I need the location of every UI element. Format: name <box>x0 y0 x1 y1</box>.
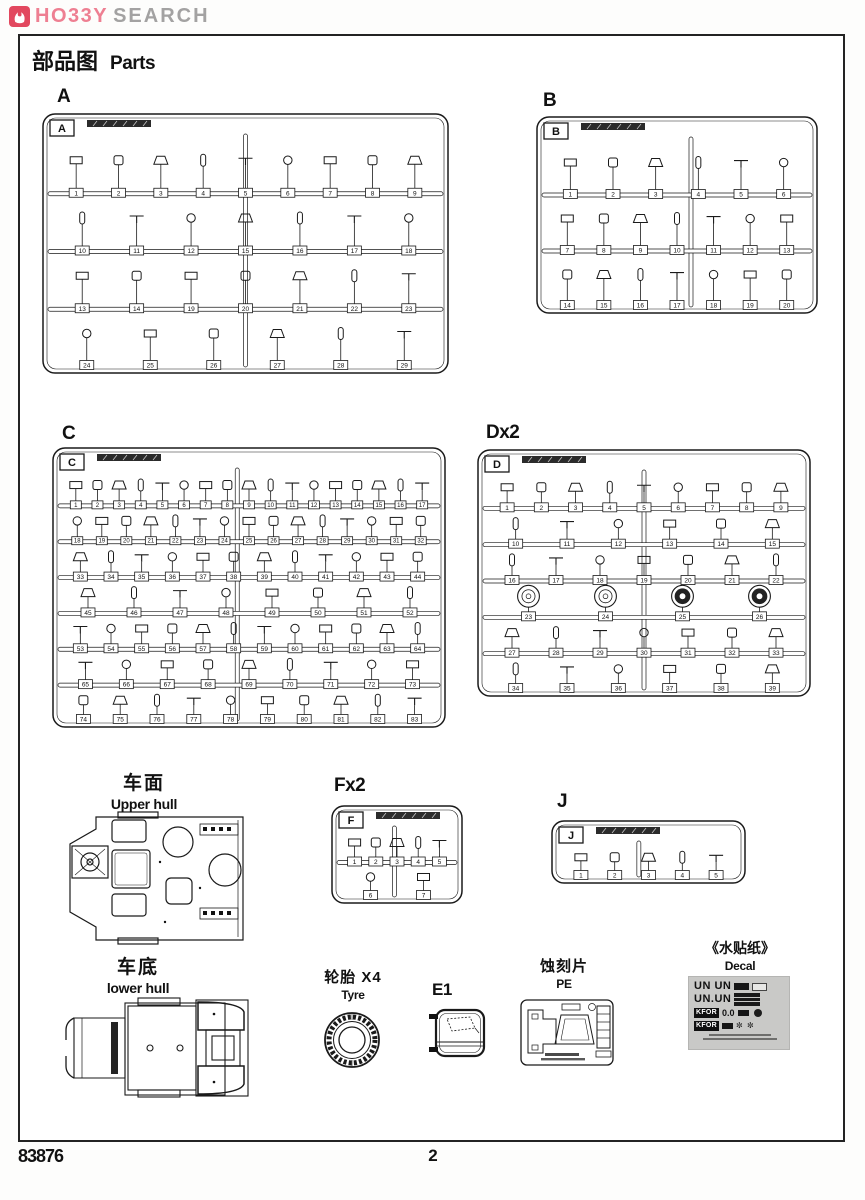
svg-text:21: 21 <box>296 306 304 313</box>
svg-text:12: 12 <box>615 541 623 548</box>
svg-text:10: 10 <box>267 503 274 509</box>
svg-text:19: 19 <box>747 303 755 310</box>
svg-text:77: 77 <box>190 717 198 724</box>
svg-text:1: 1 <box>353 859 357 866</box>
svg-text:7: 7 <box>711 505 715 512</box>
svg-text:11: 11 <box>564 541 571 548</box>
svg-text:22: 22 <box>351 306 359 313</box>
svg-text:5: 5 <box>244 190 248 197</box>
svg-text:F: F <box>348 815 355 827</box>
svg-text:8: 8 <box>371 190 375 197</box>
svg-text:38: 38 <box>230 574 238 581</box>
sprue-J: J12345 <box>552 821 745 883</box>
svg-text:18: 18 <box>405 248 413 255</box>
svg-text:30: 30 <box>368 539 375 545</box>
svg-text:28: 28 <box>319 539 326 545</box>
decal-chip <box>738 1010 749 1016</box>
svg-text:52: 52 <box>406 610 414 617</box>
sprue-F-mold-stamp <box>376 812 440 819</box>
svg-text:29: 29 <box>596 650 604 657</box>
svg-text:34: 34 <box>107 574 115 581</box>
svg-text:6: 6 <box>286 190 290 197</box>
svg-text:43: 43 <box>383 574 391 581</box>
upper-hull-title-cjk: 车面 <box>98 768 190 795</box>
sprue-F: F1234567 <box>332 806 462 903</box>
svg-text:20: 20 <box>242 306 250 313</box>
svg-text:19: 19 <box>640 578 648 585</box>
svg-text:74: 74 <box>80 717 88 724</box>
svg-text:16: 16 <box>508 578 516 585</box>
decal-un-marking-2: UN.UN <box>694 994 731 1005</box>
svg-text:78: 78 <box>227 717 235 724</box>
svg-text:39: 39 <box>769 686 777 693</box>
decal-plate-chip <box>734 983 749 990</box>
sprue-B: B1234567891011121314151617181920 <box>537 117 817 313</box>
lower-hull-title-cjk: 车底 <box>92 952 184 979</box>
svg-text:13: 13 <box>783 248 791 255</box>
svg-text:2: 2 <box>117 190 121 197</box>
svg-text:76: 76 <box>153 717 161 724</box>
svg-text:1: 1 <box>74 190 78 197</box>
pe-title-cjk: 蚀刻片 <box>530 955 598 976</box>
svg-text:4: 4 <box>697 192 701 199</box>
svg-text:3: 3 <box>647 873 651 880</box>
svg-text:D: D <box>493 459 501 471</box>
svg-text:2: 2 <box>540 505 544 512</box>
e1-label: E1 <box>432 980 452 1000</box>
svg-text:26: 26 <box>210 363 218 370</box>
svg-text:32: 32 <box>417 539 424 545</box>
svg-text:62: 62 <box>353 646 361 653</box>
svg-text:3: 3 <box>654 192 658 199</box>
svg-text:10: 10 <box>79 248 87 255</box>
svg-text:34: 34 <box>512 686 520 693</box>
svg-text:23: 23 <box>525 614 533 621</box>
svg-text:69: 69 <box>245 682 253 689</box>
svg-text:48: 48 <box>222 610 230 617</box>
decal-row-4: KFOR ✼ ✼ <box>694 1019 785 1032</box>
svg-text:60: 60 <box>291 646 299 653</box>
svg-text:13: 13 <box>666 541 674 548</box>
svg-text:18: 18 <box>74 539 81 545</box>
sprue-C-label: C <box>60 454 84 470</box>
svg-text:31: 31 <box>393 539 400 545</box>
svg-text:29: 29 <box>401 363 409 370</box>
svg-text:5: 5 <box>714 873 718 880</box>
sprue-F-heading: Fx2 <box>334 775 365 797</box>
svg-text:27: 27 <box>274 363 282 370</box>
svg-text:5: 5 <box>739 192 743 199</box>
svg-text:80: 80 <box>301 717 309 724</box>
upper-hull-title-en: Upper hull <box>98 796 190 812</box>
sprue-A-heading: A <box>57 86 70 108</box>
svg-text:75: 75 <box>117 717 125 724</box>
svg-text:15: 15 <box>600 303 608 310</box>
decal-emblems: ✼ ✼ <box>736 1021 755 1030</box>
svg-text:16: 16 <box>397 503 404 509</box>
svg-text:38: 38 <box>717 686 725 693</box>
svg-text:24: 24 <box>602 614 610 621</box>
svg-text:6: 6 <box>676 505 680 512</box>
svg-text:53: 53 <box>77 646 85 653</box>
sprue-D: D123456789101112131415161718192021222324… <box>478 450 810 696</box>
upper-hull-drawing <box>70 812 243 944</box>
svg-text:23: 23 <box>405 306 413 313</box>
svg-text:3: 3 <box>395 859 399 866</box>
sprue-A-label: A <box>50 120 74 136</box>
decal-roundel <box>754 1009 762 1017</box>
svg-text:35: 35 <box>563 686 571 693</box>
svg-text:50: 50 <box>314 610 322 617</box>
svg-text:20: 20 <box>783 303 791 310</box>
svg-text:26: 26 <box>270 539 277 545</box>
svg-text:33: 33 <box>772 650 780 657</box>
svg-text:16: 16 <box>637 303 645 310</box>
svg-text:14: 14 <box>564 303 572 310</box>
svg-text:44: 44 <box>414 574 422 581</box>
svg-text:1: 1 <box>579 873 583 880</box>
svg-text:51: 51 <box>360 610 368 617</box>
decal-kfor-badge: KFOR <box>694 1008 719 1018</box>
decal-kfor-badge-2: KFOR <box>694 1021 719 1031</box>
svg-text:15: 15 <box>376 503 383 509</box>
svg-text:15: 15 <box>242 248 250 255</box>
svg-text:17: 17 <box>552 578 560 585</box>
svg-text:3: 3 <box>574 505 578 512</box>
sprue-C-heading: C <box>62 423 75 445</box>
svg-text:28: 28 <box>337 363 345 370</box>
svg-text:5: 5 <box>642 505 646 512</box>
svg-text:56: 56 <box>169 646 177 653</box>
decal-row-1: UN UN <box>694 980 785 993</box>
svg-text:A: A <box>58 123 66 135</box>
svg-text:11: 11 <box>710 248 717 255</box>
decal-title-en: Decal <box>684 959 796 973</box>
sprue-J-mold-stamp <box>596 827 660 834</box>
tyre-title-cjk: 轮胎 X4 <box>316 966 390 987</box>
svg-text:12: 12 <box>747 248 755 255</box>
svg-text:C: C <box>68 457 76 469</box>
svg-text:36: 36 <box>615 686 623 693</box>
svg-text:25: 25 <box>246 539 253 545</box>
instruction-page: HO33Y SEARCH 部品图Parts <box>0 0 865 1200</box>
svg-text:2: 2 <box>374 859 378 866</box>
svg-text:30: 30 <box>640 650 648 657</box>
svg-text:57: 57 <box>199 646 207 653</box>
svg-text:49: 49 <box>268 610 276 617</box>
svg-text:12: 12 <box>187 248 195 255</box>
svg-text:8: 8 <box>602 248 606 255</box>
svg-text:83: 83 <box>411 717 419 724</box>
decal-fine-print <box>694 1034 785 1040</box>
svg-text:37: 37 <box>199 574 207 581</box>
svg-text:4: 4 <box>416 859 420 866</box>
svg-text:13: 13 <box>332 503 339 509</box>
svg-text:37: 37 <box>666 686 674 693</box>
svg-text:7: 7 <box>565 248 569 255</box>
sprue-F-label: F <box>339 812 363 828</box>
sprue-C-mold-stamp <box>97 454 161 461</box>
svg-text:19: 19 <box>187 306 195 313</box>
decal-un-marking: UN UN <box>694 981 731 992</box>
svg-text:15: 15 <box>769 541 777 548</box>
decal-row-2: UN.UN <box>694 993 785 1006</box>
svg-text:81: 81 <box>337 717 345 724</box>
sprue-D-heading: Dx2 <box>486 422 519 444</box>
svg-text:27: 27 <box>508 650 516 657</box>
sprue-B-heading: B <box>543 90 556 112</box>
svg-text:4: 4 <box>608 505 612 512</box>
svg-text:11: 11 <box>133 248 140 255</box>
svg-text:27: 27 <box>295 539 302 545</box>
svg-text:35: 35 <box>138 574 146 581</box>
svg-text:41: 41 <box>322 574 330 581</box>
svg-text:28: 28 <box>552 650 560 657</box>
sprue-B-label: B <box>544 123 568 139</box>
svg-text:67: 67 <box>164 682 172 689</box>
svg-text:12: 12 <box>311 503 318 509</box>
svg-text:21: 21 <box>728 578 736 585</box>
svg-text:B: B <box>552 126 560 138</box>
decal-number: 0.0 <box>722 1008 735 1018</box>
svg-text:4: 4 <box>680 873 684 880</box>
svg-text:55: 55 <box>138 646 146 653</box>
svg-text:24: 24 <box>221 539 228 545</box>
svg-text:24: 24 <box>83 363 91 370</box>
svg-text:14: 14 <box>717 541 725 548</box>
svg-text:45: 45 <box>84 610 92 617</box>
kit-number: 83876 <box>18 1146 63 1167</box>
svg-text:70: 70 <box>286 682 294 689</box>
decal-chip-2 <box>722 1023 733 1029</box>
svg-text:21: 21 <box>148 539 155 545</box>
svg-text:46: 46 <box>130 610 138 617</box>
pe-title-en: PE <box>530 977 598 991</box>
svg-text:25: 25 <box>147 363 155 370</box>
svg-text:9: 9 <box>639 248 643 255</box>
svg-text:6: 6 <box>369 893 373 900</box>
sprue-A: A123456789101112151617181314192021222324… <box>43 114 448 373</box>
page-number: 2 <box>403 1146 463 1166</box>
svg-text:9: 9 <box>413 190 417 197</box>
svg-text:16: 16 <box>296 248 304 255</box>
svg-text:2: 2 <box>613 873 617 880</box>
svg-text:63: 63 <box>383 646 391 653</box>
svg-text:22: 22 <box>772 578 780 585</box>
svg-text:J: J <box>568 830 574 842</box>
svg-text:3: 3 <box>159 190 163 197</box>
sprue-J-label: J <box>559 827 583 843</box>
svg-text:14: 14 <box>354 503 361 509</box>
sprue-J-heading: J <box>557 791 567 813</box>
sprue-C: C123456789101112131415161718192021222324… <box>53 448 445 727</box>
svg-text:18: 18 <box>596 578 604 585</box>
tyre-drawing <box>325 1013 379 1067</box>
svg-text:61: 61 <box>322 646 330 653</box>
upper-hull-title: 车面 Upper hull <box>98 768 190 812</box>
svg-text:58: 58 <box>230 646 238 653</box>
svg-text:72: 72 <box>368 682 376 689</box>
svg-text:79: 79 <box>264 717 272 724</box>
lower-hull-drawing <box>66 998 248 1097</box>
svg-text:71: 71 <box>327 682 335 689</box>
svg-text:17: 17 <box>673 303 681 310</box>
sprue-D-mold-stamp <box>522 456 586 463</box>
svg-text:7: 7 <box>328 190 332 197</box>
svg-text:39: 39 <box>261 574 269 581</box>
svg-text:40: 40 <box>291 574 299 581</box>
svg-text:68: 68 <box>204 682 212 689</box>
svg-text:18: 18 <box>710 303 718 310</box>
svg-text:42: 42 <box>353 574 361 581</box>
svg-text:29: 29 <box>344 539 351 545</box>
lower-hull-title-en: lower hull <box>92 980 184 996</box>
e1-part-drawing <box>429 1010 484 1056</box>
decal-title: 《水贴纸》 Decal <box>684 938 796 973</box>
svg-text:73: 73 <box>409 682 417 689</box>
svg-text:54: 54 <box>107 646 115 653</box>
tyre-title: 轮胎 X4 Tyre <box>316 966 390 1002</box>
svg-text:36: 36 <box>169 574 177 581</box>
svg-text:5: 5 <box>438 859 442 866</box>
svg-text:7: 7 <box>422 893 426 900</box>
svg-text:19: 19 <box>98 539 105 545</box>
decal-license-plates <box>734 993 760 1006</box>
svg-text:66: 66 <box>123 682 131 689</box>
svg-text:2: 2 <box>611 192 615 199</box>
svg-text:10: 10 <box>512 541 520 548</box>
lower-hull-title: 车底 lower hull <box>92 952 184 996</box>
tyre-title-en: Tyre <box>316 988 390 1002</box>
svg-text:82: 82 <box>374 717 382 724</box>
pe-fret-drawing <box>521 1000 613 1065</box>
svg-text:1: 1 <box>505 505 509 512</box>
svg-text:14: 14 <box>133 306 141 313</box>
sprue-B-mold-stamp <box>581 123 645 130</box>
svg-text:10: 10 <box>673 248 681 255</box>
svg-text:31: 31 <box>684 650 692 657</box>
svg-text:25: 25 <box>679 614 687 621</box>
svg-text:11: 11 <box>289 503 296 509</box>
svg-text:33: 33 <box>77 574 85 581</box>
decal-row-3: KFOR 0.0 <box>694 1006 785 1019</box>
svg-text:22: 22 <box>172 539 179 545</box>
svg-text:9: 9 <box>779 505 783 512</box>
decal-plate-chip-light <box>752 983 767 991</box>
sprue-D-label: D <box>485 456 509 472</box>
svg-text:47: 47 <box>176 610 184 617</box>
decal-title-cjk: 《水贴纸》 <box>684 938 796 958</box>
svg-text:13: 13 <box>79 306 87 313</box>
svg-text:65: 65 <box>82 682 90 689</box>
svg-text:32: 32 <box>728 650 736 657</box>
svg-text:17: 17 <box>351 248 359 255</box>
svg-text:17: 17 <box>419 503 426 509</box>
svg-text:20: 20 <box>123 539 130 545</box>
svg-text:6: 6 <box>782 192 786 199</box>
svg-text:8: 8 <box>745 505 749 512</box>
svg-text:23: 23 <box>197 539 204 545</box>
svg-text:1: 1 <box>569 192 573 199</box>
decal-sheet: UN UN UN.UN KFOR 0.0 KFOR ✼ ✼ <box>688 976 790 1050</box>
svg-text:64: 64 <box>414 646 422 653</box>
pe-title: 蚀刻片 PE <box>530 955 598 991</box>
svg-text:20: 20 <box>684 578 692 585</box>
sprue-A-mold-stamp <box>87 120 151 127</box>
svg-text:59: 59 <box>261 646 269 653</box>
svg-text:4: 4 <box>201 190 205 197</box>
svg-text:26: 26 <box>756 614 764 621</box>
